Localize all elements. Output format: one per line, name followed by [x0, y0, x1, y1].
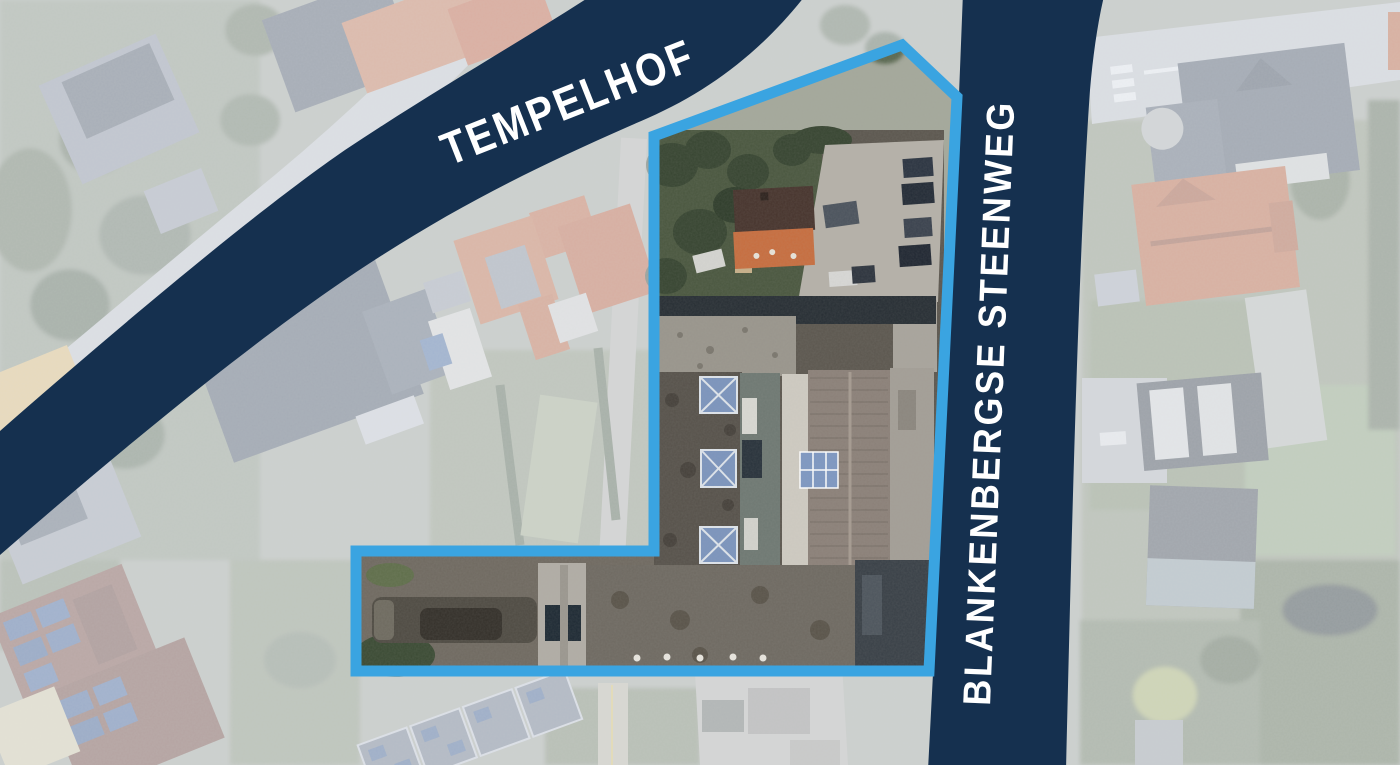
aerial-site-map: TEMPELHOF BLANKENBERGSE STEENWEG	[0, 0, 1400, 765]
aerial-map-image: TEMPELHOF BLANKENBERGSE STEENWEG	[0, 0, 1400, 765]
